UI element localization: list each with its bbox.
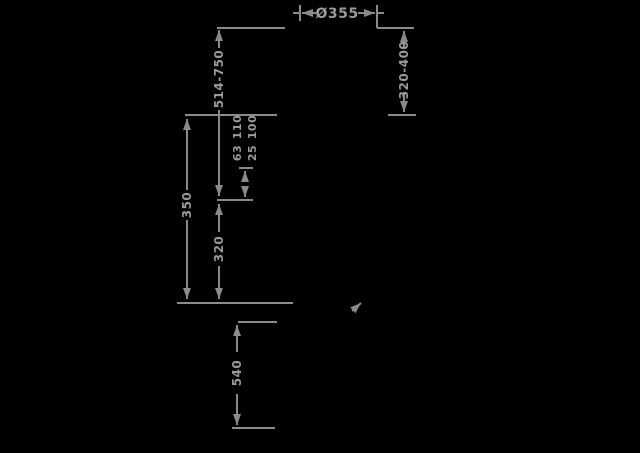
dimension-drawing: Ø355 320-400 514-750 110 100 63 25 350 3… (0, 0, 640, 453)
mid-upper-label-line1: 110 (231, 115, 244, 139)
upper-height-range-label: 514-750 (212, 50, 226, 109)
right-range-label: 320-400 (397, 41, 411, 100)
left-height-label: 350 (180, 192, 194, 219)
mid-upper-label-line2: 100 (246, 115, 259, 139)
floor-leader-arrow (352, 303, 361, 311)
base-height-label: 540 (230, 360, 244, 387)
center-lower-height-label: 320 (212, 236, 226, 263)
dimension-drawing-canvas: Ø355 320-400 514-750 110 100 63 25 350 3… (0, 0, 640, 453)
mid-lower-label-line2: 25 (246, 145, 259, 161)
mid-lower-label-line1: 63 (231, 145, 244, 161)
top-diameter-label: Ø355 (315, 6, 358, 22)
